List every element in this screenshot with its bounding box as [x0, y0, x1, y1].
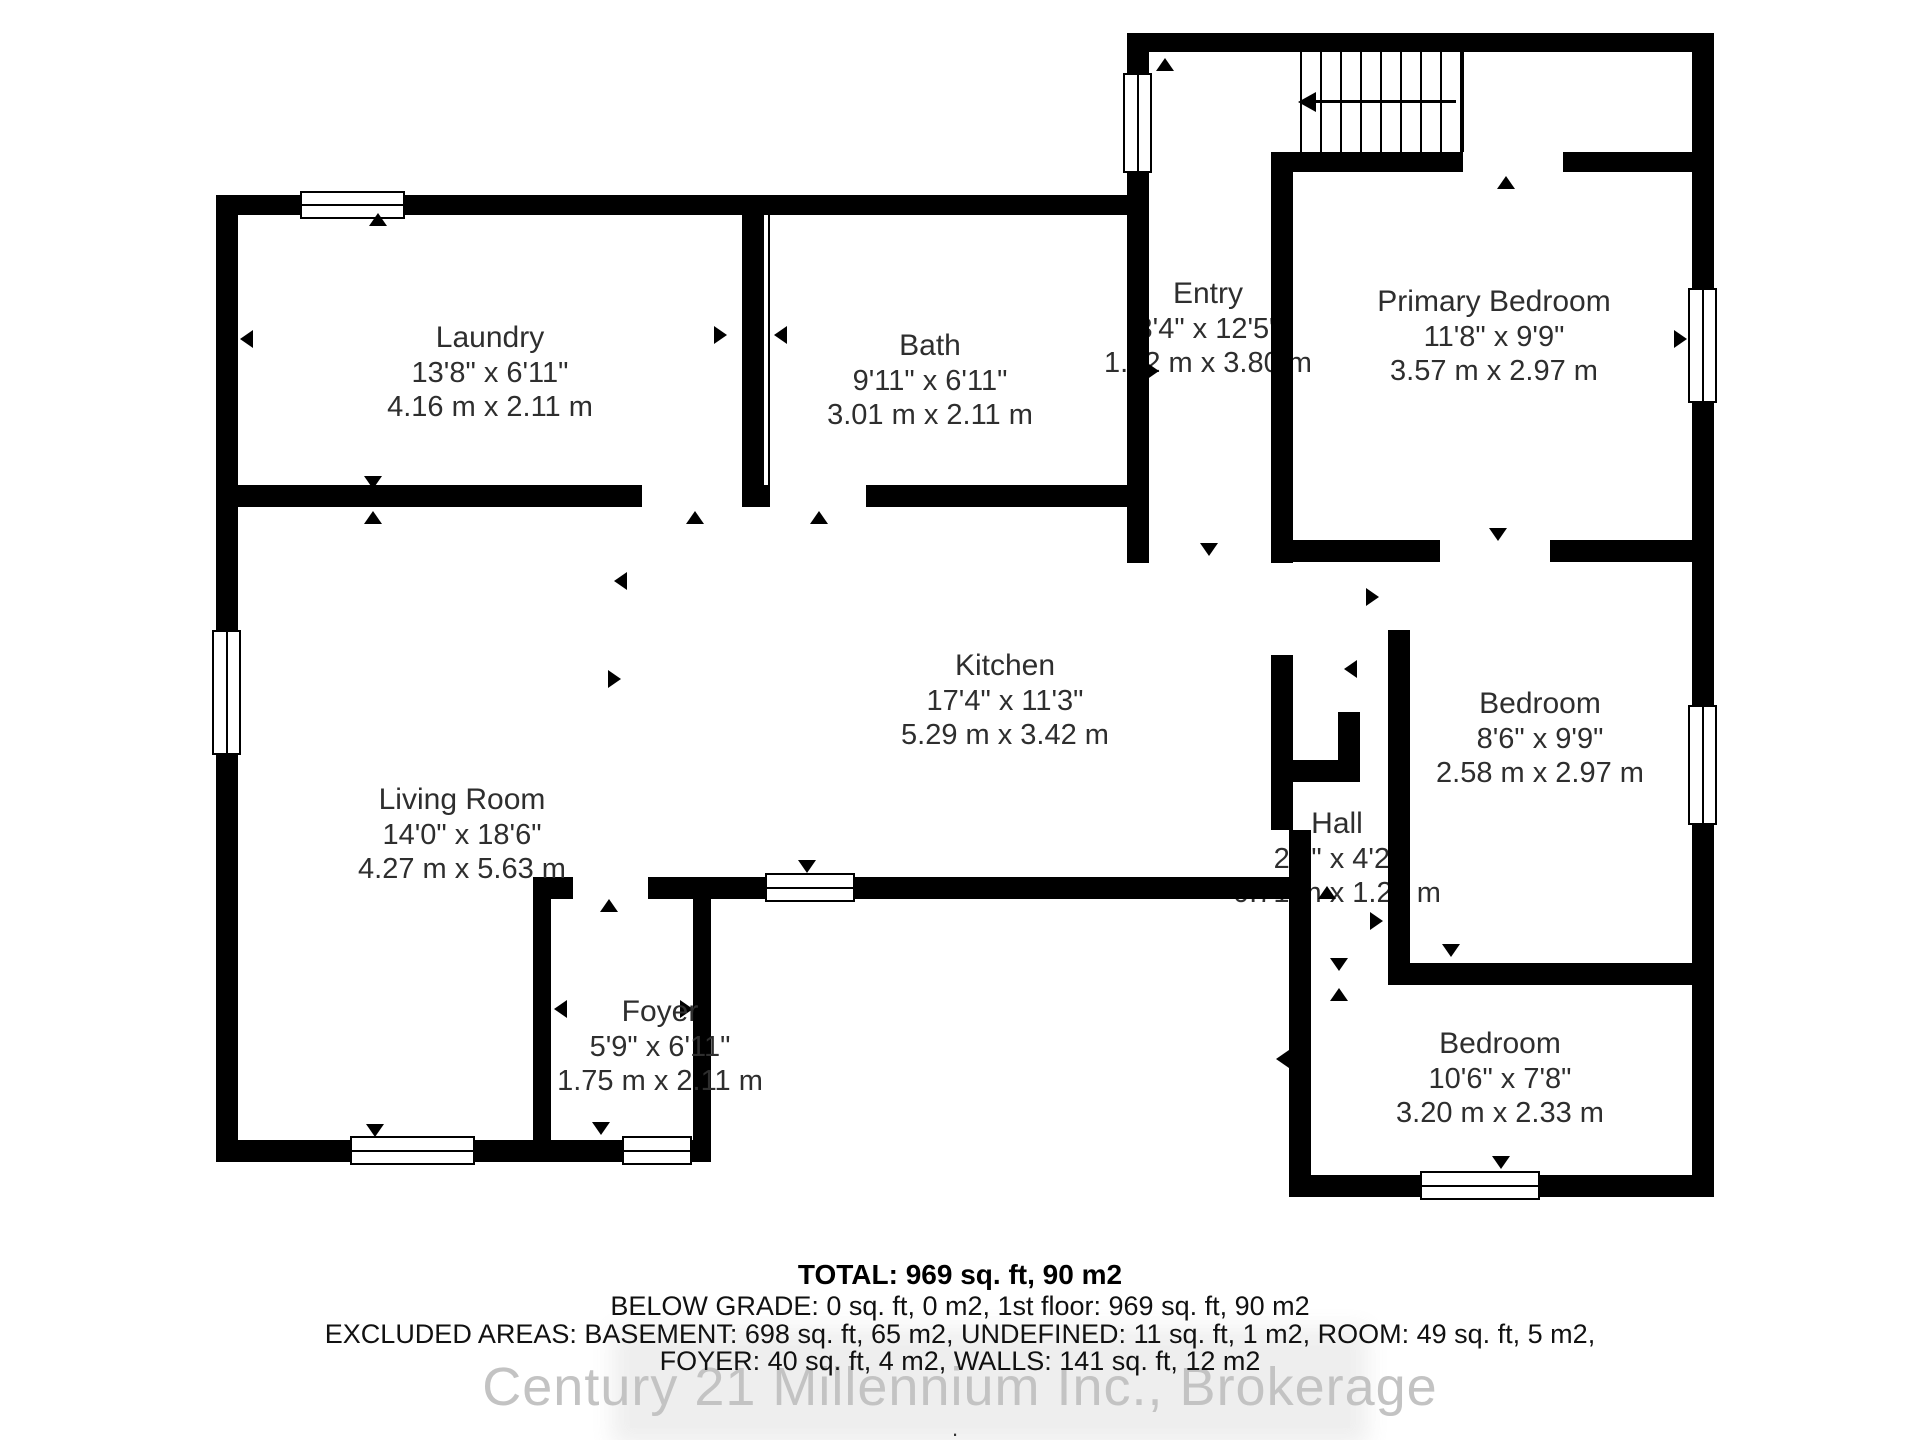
room-label-bath: Bath 9'11" x 6'11" 3.01 m x 2.11 m: [827, 328, 1033, 432]
window-symbol: [1420, 1171, 1540, 1200]
wall: [1388, 630, 1410, 985]
door-marker: [1497, 176, 1515, 189]
window-symbol: [1123, 73, 1152, 173]
window-symbol: [1688, 705, 1717, 825]
door-marker: [1366, 588, 1379, 606]
room-name: Bedroom: [1396, 1026, 1604, 1062]
wall: [1289, 830, 1311, 1197]
window-symbol: [350, 1136, 475, 1165]
wall: [742, 485, 768, 507]
room-label-bedroom-right: Bedroom 8'6" x 9'9" 2.58 m x 2.97 m: [1436, 686, 1644, 790]
room-label-primary-bedroom: Primary Bedroom 11'8" x 9'9" 3.57 m x 2.…: [1377, 284, 1610, 388]
door-marker: [1278, 362, 1291, 380]
door-marker: [1156, 58, 1174, 71]
room-dim-metric: 2.58 m x 2.97 m: [1436, 756, 1644, 790]
wall: [405, 195, 1149, 215]
room-label-bedroom-bottom: Bedroom 10'6" x 7'8" 3.20 m x 2.33 m: [1396, 1026, 1604, 1130]
room-dim-metric: 3.20 m x 2.33 m: [1396, 1096, 1604, 1130]
door-marker: [1276, 1050, 1289, 1068]
wall: [1563, 152, 1692, 172]
door-marker: [798, 860, 816, 873]
door-marker: [686, 511, 704, 524]
door-marker: [592, 1122, 610, 1135]
room-dim-imperial: 11'8" x 9'9": [1377, 320, 1610, 354]
room-dim-imperial: 13'8" x 6'11": [387, 356, 593, 390]
wall: [216, 195, 300, 215]
room-dim-metric: 3.01 m x 2.11 m: [827, 398, 1033, 432]
wall: [1293, 760, 1360, 782]
wall: [711, 877, 765, 899]
window-symbol: [1688, 288, 1717, 403]
door-marker: [240, 330, 253, 348]
wall: [216, 1140, 350, 1162]
door-marker: [1489, 528, 1507, 541]
room-dim-imperial: 10'6" x 7'8": [1396, 1062, 1604, 1096]
room-dim-imperial: 8'6" x 9'9": [1436, 722, 1644, 756]
door-marker: [608, 670, 621, 688]
room-label-foyer: Foyer 5'9" x 6'11" 1.75 m x 2.11 m: [557, 994, 763, 1098]
room-name: Bath: [827, 328, 1033, 364]
door-marker: [1370, 912, 1383, 930]
door-marker: [774, 326, 787, 344]
room-label-living-room: Living Room 14'0" x 18'6" 4.27 m x 5.63 …: [358, 782, 566, 886]
wall: [866, 485, 1149, 507]
wall: [1271, 152, 1293, 563]
room-label-kitchen: Kitchen 17'4" x 11'3" 5.29 m x 3.42 m: [901, 648, 1109, 752]
summary-below-grade: BELOW GRADE: 0 sq. ft, 0 m2, 1st floor: …: [0, 1291, 1920, 1322]
room-name: Laundry: [387, 320, 593, 356]
wall: [1540, 1175, 1692, 1197]
wall: [1338, 712, 1360, 760]
room-dim-metric: 3.57 m x 2.97 m: [1377, 354, 1610, 388]
door-marker: [1330, 958, 1348, 971]
room-dim-metric: 4.16 m x 2.11 m: [387, 390, 593, 424]
door-marker: [1200, 543, 1218, 556]
wall: [1293, 152, 1463, 172]
wall: [1289, 1175, 1420, 1197]
stray-dot: .: [952, 1416, 958, 1440]
door-marker: [1296, 912, 1309, 930]
room-dim-imperial: 14'0" x 18'6": [358, 818, 566, 852]
window-symbol: [212, 630, 241, 755]
door-marker: [1318, 886, 1336, 899]
door-marker: [714, 326, 727, 344]
room-label-laundry: Laundry 13'8" x 6'11" 4.16 m x 2.11 m: [387, 320, 593, 424]
wall: [768, 215, 770, 507]
room-dim-imperial: 9'11" x 6'11": [827, 364, 1033, 398]
wall: [1692, 33, 1714, 1197]
room-dim-imperial: 5'9" x 6'11": [557, 1030, 763, 1064]
room-dim-metric: 4.27 m x 5.63 m: [358, 852, 566, 886]
stair-direction-arrow: [1316, 100, 1456, 103]
door-marker: [614, 572, 627, 590]
wall: [533, 877, 551, 1140]
wall: [1271, 540, 1440, 562]
wall: [216, 485, 642, 507]
wall: [1410, 963, 1692, 985]
room-dim-imperial: 17'4" x 11'3": [901, 684, 1109, 718]
wall: [475, 1140, 622, 1162]
room-name: Primary Bedroom: [1377, 284, 1610, 320]
door-marker: [364, 476, 382, 489]
wall: [855, 877, 1289, 899]
door-marker: [1492, 1156, 1510, 1169]
door-marker: [1674, 330, 1687, 348]
door-marker: [369, 213, 387, 226]
wall: [648, 877, 711, 899]
door-marker: [364, 511, 382, 524]
door-marker: [600, 899, 618, 912]
room-name: Bedroom: [1436, 686, 1644, 722]
window-symbol: [622, 1136, 692, 1165]
door-marker: [1344, 660, 1357, 678]
room-name: Foyer: [557, 994, 763, 1030]
room-name: Kitchen: [901, 648, 1109, 684]
door-marker: [1330, 988, 1348, 1001]
wall: [1550, 540, 1692, 562]
wall: [742, 215, 764, 507]
window-symbol: [765, 873, 855, 902]
window-symbol: [300, 191, 405, 219]
summary-excluded-2: FOYER: 40 sq. ft, 4 m2, WALLS: 141 sq. f…: [0, 1346, 1920, 1377]
door-marker: [1146, 362, 1159, 380]
room-dim-metric: 5.29 m x 3.42 m: [901, 718, 1109, 752]
wall: [1271, 655, 1293, 830]
stair-arrow-head-icon: [1298, 92, 1316, 112]
wall: [1127, 33, 1714, 52]
floor-plan: Laundry 13'8" x 6'11" 4.16 m x 2.11 m Ba…: [0, 0, 1920, 1440]
door-marker: [1442, 944, 1460, 957]
door-marker: [366, 1124, 384, 1137]
door-marker: [810, 511, 828, 524]
summary-total: TOTAL: 969 sq. ft, 90 m2: [0, 1259, 1920, 1291]
room-dim-metric: 1.75 m x 2.11 m: [557, 1064, 763, 1098]
room-name: Living Room: [358, 782, 566, 818]
